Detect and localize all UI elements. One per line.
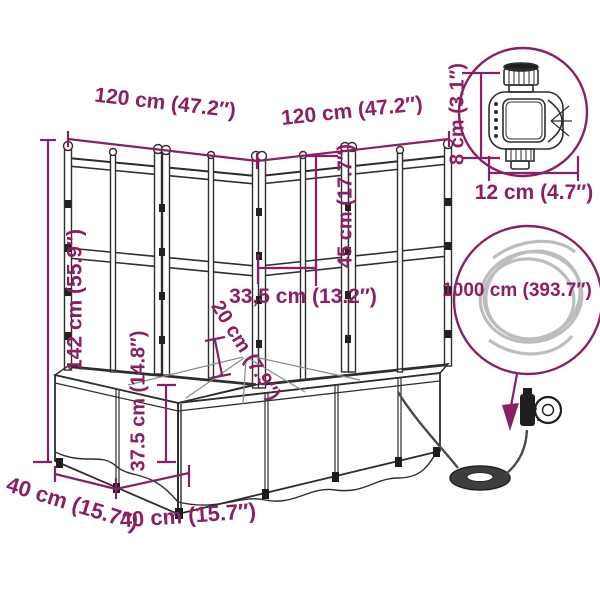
hose-length-label: 1000 cm (393.7″)	[442, 280, 592, 301]
product-dimension-diagram: 8 cm (3.1″) 12 cm (4.7″) 1000 cm (393.7″…	[0, 0, 600, 600]
trellis-height-label: 45 cm (17.7″)	[334, 144, 356, 268]
height-total-label: 142 cm (55.9″)	[64, 229, 87, 371]
timer-width-label: 12 cm (4.7″)	[475, 181, 594, 204]
box-height-label: 37.5 cm (14.8″)	[127, 331, 149, 472]
timer-height-label: 8 cm (3.1″)	[446, 63, 468, 165]
panel-width-label: 33,5 cm (13.2″)	[229, 285, 377, 308]
diagram-canvas: 8 cm (3.1″) 12 cm (4.7″) 1000 cm (393.7″…	[0, 0, 600, 600]
